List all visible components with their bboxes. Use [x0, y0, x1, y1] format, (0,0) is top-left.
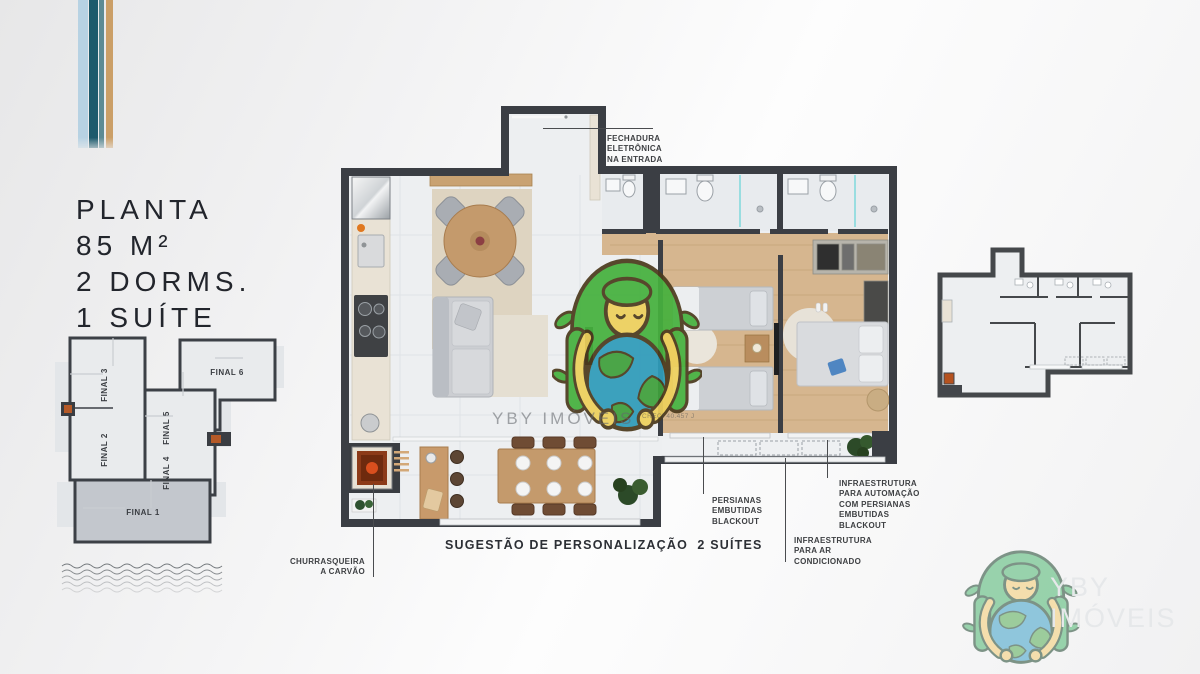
leader-barbecue	[373, 484, 374, 577]
leader-automation	[827, 440, 828, 478]
creci-number: CRECI 40.457 J	[642, 413, 695, 420]
label-final-3: FINAL 3	[100, 368, 109, 402]
title-line-1: PLANTA	[76, 192, 251, 228]
jute-rug	[867, 389, 889, 411]
alt-plan-dark-corner	[940, 385, 962, 395]
stripe-tan	[106, 0, 113, 148]
annotation-barbecue: CHURRASQUEIRA A CARVÃO	[275, 557, 365, 578]
label-final-4: FINAL 4	[162, 456, 171, 490]
leader-entrance-lock	[543, 128, 653, 129]
waves-decoration	[60, 562, 230, 594]
kitchen	[352, 177, 390, 440]
sofa	[433, 297, 493, 397]
building-key-plan: FINAL 3 FINAL 2 FINAL 5 FINAL 4 FINAL 6 …	[55, 332, 305, 547]
stripe-light-blue	[78, 0, 88, 148]
charcoal-grill	[352, 447, 392, 489]
label-final-6: FINAL 6	[210, 368, 244, 377]
stripe-teal	[99, 0, 104, 148]
bathroom-bottom-wall	[602, 229, 888, 234]
terrace-dining-table	[498, 437, 596, 515]
title-line-2: 85 M²	[76, 228, 251, 264]
annotation-automation: INFRAESTRUTURA PARA AUTOMAÇÃO COM PERSIA…	[839, 479, 920, 531]
label-final-1: FINAL 1	[126, 508, 160, 517]
title-line-4: 1 SUÍTE	[76, 300, 251, 336]
stripe-dark-teal	[89, 0, 98, 148]
round-sink	[361, 414, 379, 432]
kitchen-sink	[358, 235, 384, 267]
title-block: PLANTA 85 M² 2 DORMS. 1 SUÍTE	[76, 192, 251, 336]
title-line-3: 2 DORMS.	[76, 264, 251, 300]
personalization-caption: SUGESTÃO DE PERSONALIZAÇÃO 2 SUÍTES	[445, 538, 763, 552]
annotation-blinds: PERSIANAS EMBUTIDAS BLACKOUT	[712, 496, 762, 527]
bar-counter	[420, 447, 448, 519]
annotation-air-conditioning: INFRAESTRUTURA PARA AR CONDICIONADO	[794, 536, 872, 567]
steel-cabinet	[352, 177, 390, 219]
floorplan-poster: PLANTA 85 M² 2 DORMS. 1 SUÍTE	[0, 0, 1200, 674]
alt-plan-grill	[944, 373, 954, 384]
bedroom-tv	[774, 323, 779, 375]
logo-brand-text: YBY IMÓVEIS	[1050, 572, 1200, 634]
sofa-rug	[490, 315, 548, 397]
leader-air-conditioning	[785, 458, 786, 562]
annotation-entrance-lock: FECHADURA ELETRÔNICA NA ENTRADA	[607, 134, 663, 165]
master-bed	[797, 322, 888, 386]
leader-blinds	[703, 437, 704, 494]
plan-watermark-text: YBY IMÓVEIS	[492, 409, 634, 429]
bathrooms	[602, 174, 888, 234]
flame-icon	[357, 224, 365, 232]
bar-stools	[451, 451, 464, 508]
alternate-plan	[930, 245, 1135, 400]
label-final-5: FINAL 5	[162, 411, 171, 445]
cooktop	[354, 295, 388, 357]
label-final-2: FINAL 2	[100, 433, 109, 467]
